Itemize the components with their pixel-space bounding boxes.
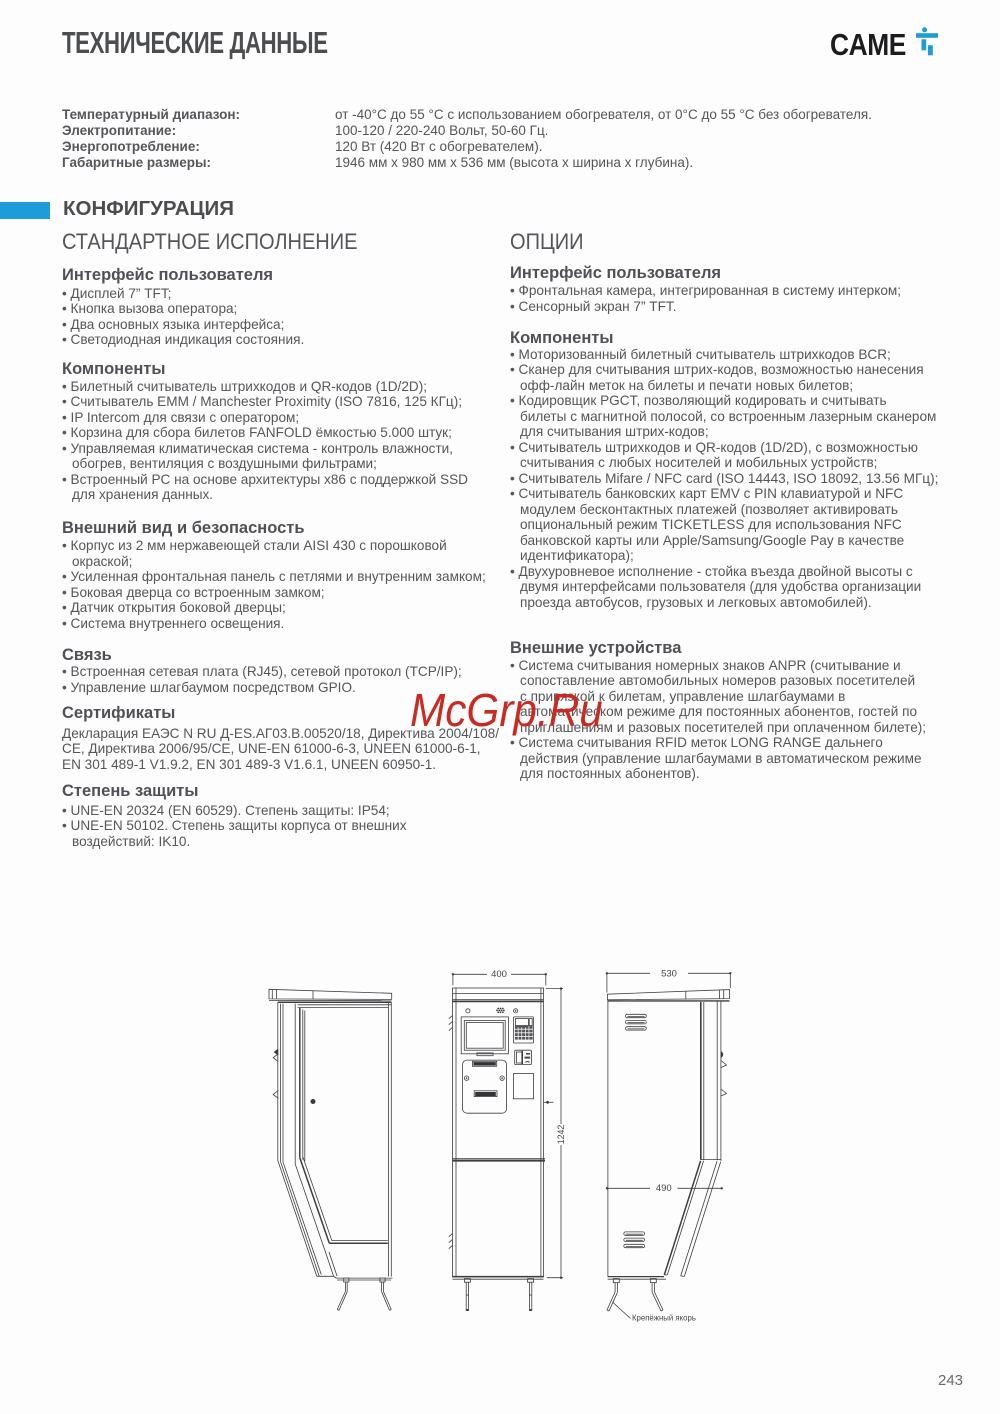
svg-text:1242: 1242 [556, 1125, 566, 1145]
svg-text:400: 400 [491, 969, 507, 980]
svg-text:490: 490 [656, 1183, 672, 1194]
svg-text:Крепёжный якорь: Крепёжный якорь [632, 1313, 696, 1322]
svg-text:530: 530 [661, 969, 677, 980]
